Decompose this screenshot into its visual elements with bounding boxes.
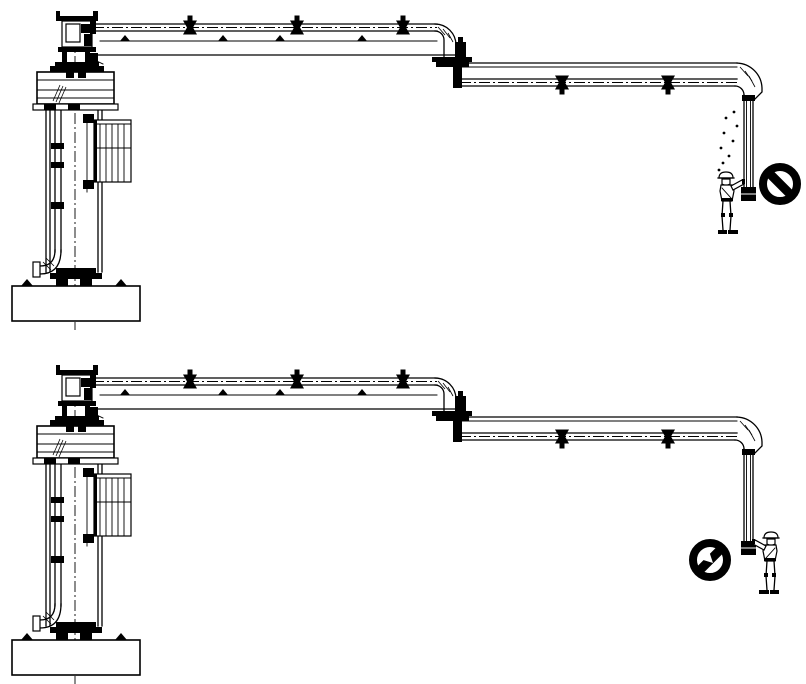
upper-view xyxy=(12,11,797,330)
drip-dot xyxy=(720,147,723,150)
drip-dots xyxy=(718,111,739,172)
drip-dot xyxy=(723,132,726,135)
drip-dot xyxy=(733,111,736,114)
operator-figure-lower xyxy=(752,532,779,594)
drip-dot xyxy=(725,117,728,120)
prohibition-arrow-icon xyxy=(693,543,727,577)
drip-dot xyxy=(718,169,721,172)
drip-dot xyxy=(728,155,731,158)
drip-dot xyxy=(732,140,735,143)
prohibition-icon xyxy=(763,167,797,201)
loading-arm-upper xyxy=(12,11,762,330)
lower-view xyxy=(12,365,779,684)
drip-dot xyxy=(722,162,725,165)
diagram-page xyxy=(0,0,806,684)
operator-figure-upper xyxy=(718,172,745,234)
drip-dot xyxy=(736,125,739,128)
loading-arm-diagram xyxy=(0,0,806,684)
loading-arm-lower xyxy=(12,365,762,684)
